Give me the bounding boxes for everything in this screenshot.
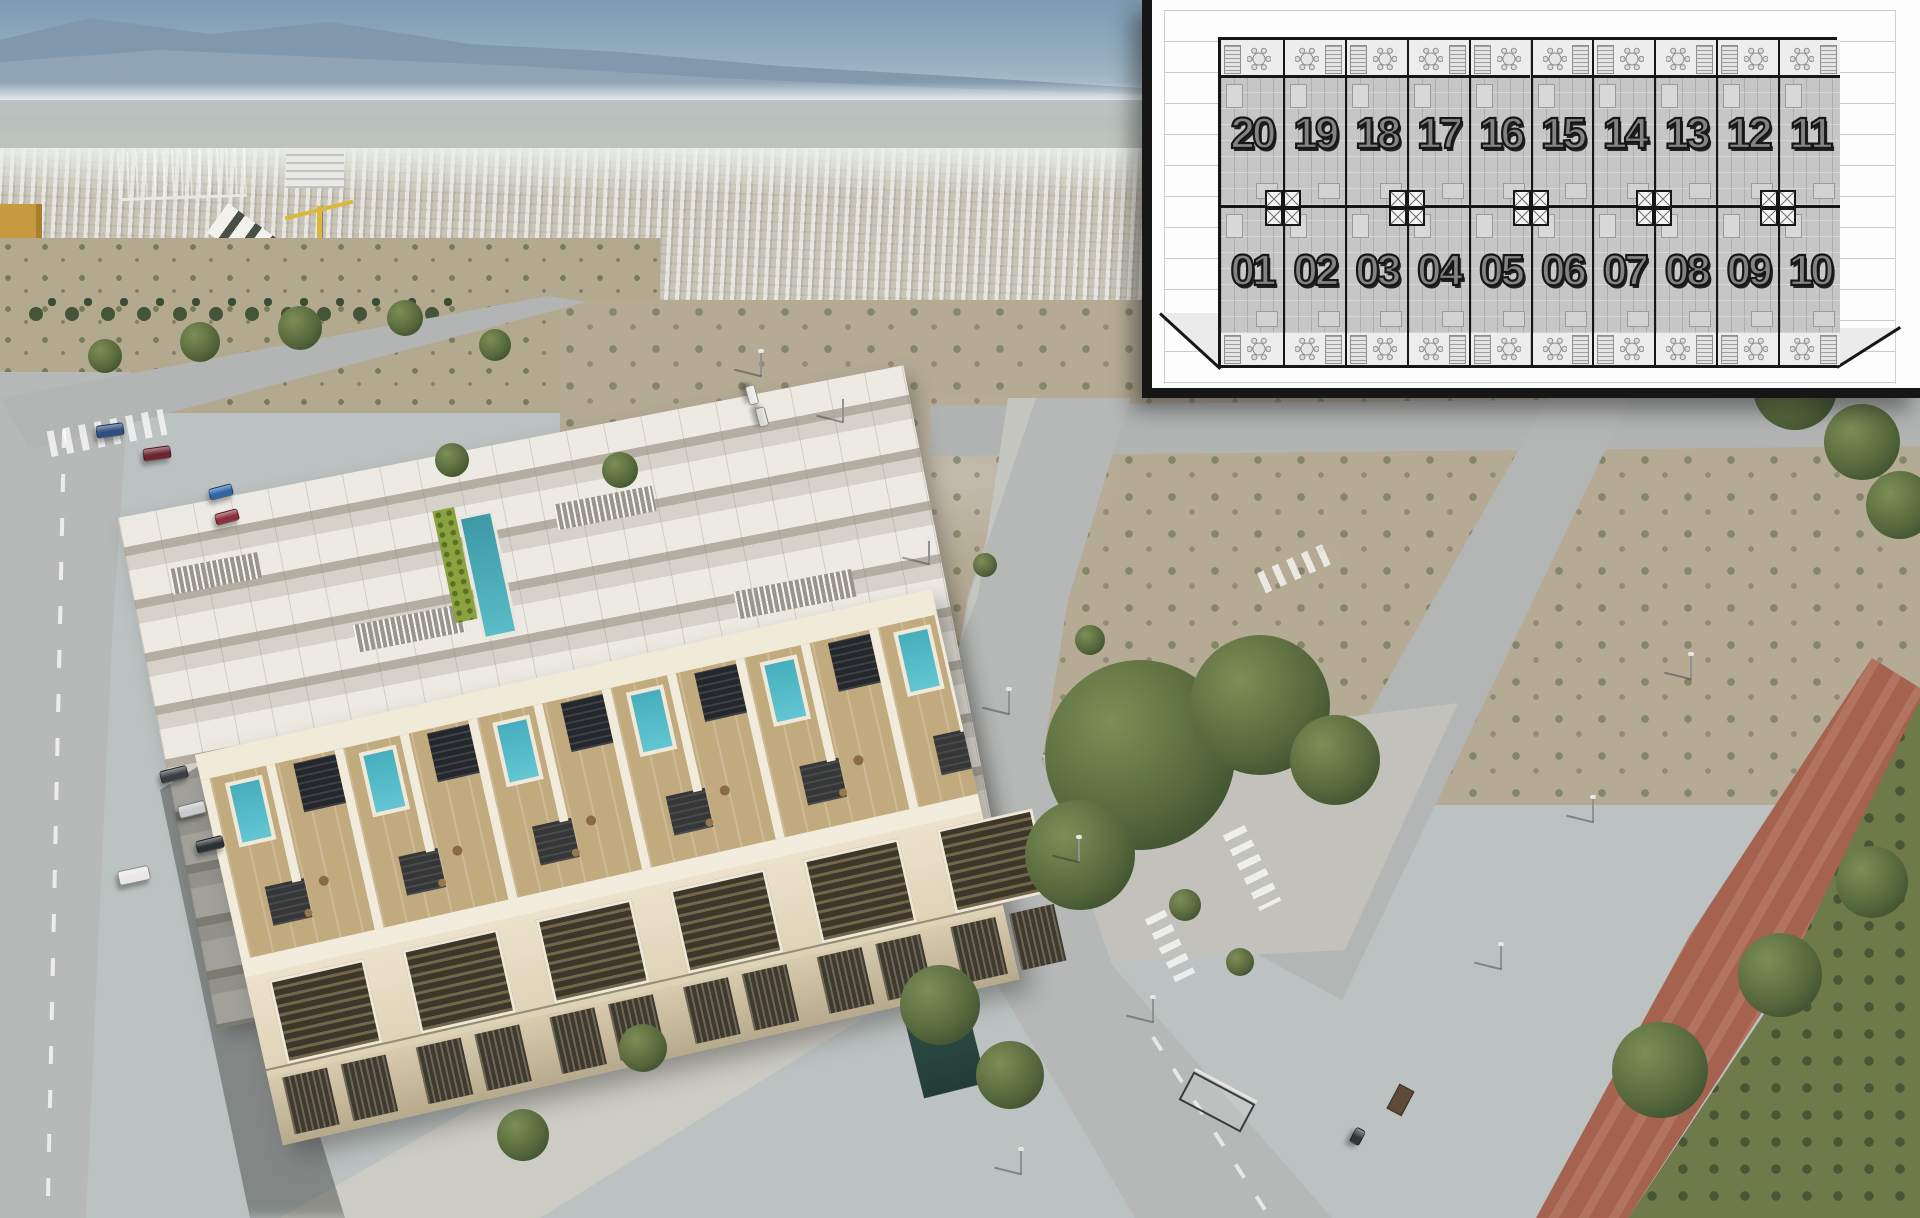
plunge-pool-icon [492, 715, 544, 788]
pergola-awning [353, 604, 466, 652]
unit-number: 07 [1603, 249, 1646, 293]
terrace-cell [1409, 40, 1469, 78]
tree-icon [973, 553, 997, 577]
tree-icon [1025, 800, 1135, 910]
terrace-furniture [585, 815, 597, 827]
core-shaft-x-icon [1760, 190, 1796, 226]
round-table-icon [1666, 337, 1690, 361]
terrace-cell [1533, 40, 1593, 78]
stairs-hatch-icon [1721, 45, 1738, 74]
street-light-icon [760, 352, 762, 376]
window-bay [536, 899, 651, 1004]
unit-number: 02 [1293, 249, 1336, 293]
round-table-icon [1373, 337, 1397, 361]
unit-upper-half: 18 [1347, 78, 1407, 208]
round-table-icon [1247, 337, 1271, 361]
street-light-icon [928, 540, 930, 564]
unit-number: 12 [1727, 112, 1770, 156]
tree-icon [976, 1041, 1044, 1109]
warehouse-green-roof [117, 148, 247, 201]
unit-upper-half: 19 [1285, 78, 1345, 208]
round-table-icon [1419, 47, 1443, 71]
round-table-icon [1744, 337, 1768, 361]
tree-icon [1836, 846, 1908, 918]
terrace-cell [1347, 40, 1407, 78]
terrace-cell [1780, 40, 1840, 78]
unit-number: 19 [1293, 112, 1336, 156]
street-light-icon [1078, 838, 1080, 862]
unit-number: 10 [1789, 249, 1832, 293]
tree-icon [88, 339, 122, 373]
street-light-icon [1008, 690, 1010, 714]
terrace-furniture [852, 754, 864, 766]
stairs-hatch-icon [1350, 335, 1367, 364]
plunge-pool-icon [760, 654, 812, 727]
plan-building: 2001190218031704160515061407130812091110 [1218, 37, 1837, 368]
tree-icon [278, 306, 322, 350]
street-light-icon [1152, 998, 1154, 1022]
site-plan-inset: 2001190218031704160515061407130812091110 [1142, 0, 1920, 398]
street-light-icon [842, 398, 844, 422]
stairs-hatch-icon [1572, 335, 1589, 364]
tree-icon [1612, 1022, 1708, 1118]
unit-number: 04 [1417, 249, 1460, 293]
unit-lower-half: 02 [1285, 208, 1345, 333]
slat-shutter [474, 1024, 532, 1091]
round-table-icon [1295, 47, 1319, 71]
stairs-hatch-icon [1224, 45, 1241, 74]
stairs-hatch-icon [1572, 45, 1589, 74]
window-bay [402, 929, 517, 1034]
round-table-icon [1295, 337, 1319, 361]
tree-icon [1824, 404, 1900, 480]
stairs-hatch-icon [1597, 335, 1614, 364]
street-light-icon [1690, 655, 1692, 679]
core-shaft-x-icon [1389, 190, 1425, 226]
round-table-icon [1620, 47, 1644, 71]
stairs-hatch-icon [1224, 335, 1241, 364]
unit-lower-half: 05 [1471, 208, 1531, 333]
stairs-hatch-icon [1449, 335, 1466, 364]
tree-icon [619, 1024, 667, 1072]
unit-lower-half: 06 [1533, 208, 1593, 333]
core-shaft-x-icon [1636, 190, 1672, 226]
round-table-icon [1497, 337, 1521, 361]
unit-upper-half: 12 [1718, 78, 1778, 208]
stairs-hatch-icon [1325, 335, 1342, 364]
tree-icon [180, 322, 220, 362]
unit-lower-half: 07 [1594, 208, 1654, 333]
street-light-icon [1592, 798, 1594, 822]
slat-shutter [683, 977, 741, 1044]
terrace-cell [1221, 40, 1283, 78]
round-table-icon [1744, 47, 1768, 71]
round-table-icon [1543, 47, 1567, 71]
window-bay [268, 959, 383, 1064]
unit-upper-half: 16 [1471, 78, 1531, 208]
core-shaft-x-icon [1513, 190, 1549, 226]
car-icon [117, 865, 151, 886]
tree-icon [602, 452, 638, 488]
unit-number: 13 [1665, 112, 1708, 156]
terrace-furniture [719, 784, 731, 796]
slat-shutter [742, 964, 800, 1031]
round-table-icon [1790, 47, 1814, 71]
plunge-pool-icon [359, 745, 411, 818]
slat-shutter [549, 1007, 607, 1074]
car-icon [142, 445, 172, 462]
stairs-hatch-icon [1696, 45, 1713, 74]
stairs-hatch-icon [1474, 45, 1491, 74]
pergola-dark [265, 878, 313, 926]
stairs-hatch-icon [1474, 335, 1491, 364]
stairs-hatch-icon [1820, 45, 1837, 74]
round-table-icon [1373, 47, 1397, 71]
car-icon [1349, 1126, 1367, 1146]
pergola-dark [666, 788, 714, 836]
unit-number: 20 [1230, 112, 1273, 156]
bench [1386, 1084, 1414, 1117]
pergola-dark [398, 848, 446, 896]
unit-number: 05 [1479, 249, 1522, 293]
unit-lower-half: 03 [1347, 208, 1407, 333]
unit-upper-half: 14 [1594, 78, 1654, 208]
unit-upper-half: 20 [1221, 78, 1283, 208]
tree-icon [1738, 933, 1822, 1017]
tree-icon [1169, 889, 1201, 921]
unit-number: 08 [1665, 249, 1708, 293]
round-table-icon [1666, 47, 1690, 71]
unit-lower-half: 09 [1718, 208, 1778, 333]
plunge-pool-icon [225, 775, 277, 848]
unit-number: 01 [1230, 249, 1273, 293]
stairs-hatch-icon [1721, 335, 1738, 364]
plunge-pool-icon [626, 684, 678, 757]
street-light-icon [1500, 945, 1502, 969]
unit-number: 03 [1355, 249, 1398, 293]
unit-number: 14 [1603, 112, 1646, 156]
pergola-awning [169, 552, 262, 595]
white-office-building [286, 146, 344, 188]
terrace-furniture [318, 875, 330, 887]
tree-icon [387, 300, 423, 336]
unit-number: 15 [1541, 112, 1584, 156]
round-table-icon [1497, 47, 1521, 71]
unit-upper-half: 13 [1656, 78, 1716, 208]
unit-number: 17 [1417, 112, 1460, 156]
unit-lower-half: 10 [1780, 208, 1840, 333]
stairs-hatch-icon [1350, 45, 1367, 74]
slat-shutter [282, 1068, 340, 1135]
tree-icon [435, 443, 469, 477]
tree-icon [1226, 948, 1254, 976]
terrace-cell [1718, 40, 1778, 78]
terrace-furniture [451, 845, 463, 857]
terrace-cell [1471, 40, 1531, 78]
pergola-dark [532, 818, 580, 866]
terrace-cell [1285, 40, 1345, 78]
tree-icon [497, 1109, 549, 1161]
unit-upper-half: 11 [1780, 78, 1840, 208]
window-bay [669, 868, 784, 973]
core-shaft-x-icon [1265, 190, 1301, 226]
slat-shutter [341, 1054, 399, 1121]
unit-lower-half: 01 [1221, 208, 1283, 333]
tree-icon [479, 329, 511, 361]
stairs-hatch-icon [1597, 45, 1614, 74]
unit-number: 18 [1355, 112, 1398, 156]
tree-icon [1075, 625, 1105, 655]
aerial-development-scene: 2001190218031704160515061407130812091110 [0, 0, 1920, 1218]
tree-icon [1290, 715, 1380, 805]
pergola-awning [553, 486, 656, 531]
unit-number: 09 [1727, 249, 1770, 293]
stairs-hatch-icon [1325, 45, 1342, 74]
street-light-icon [1020, 1150, 1022, 1174]
round-table-icon [1419, 337, 1443, 361]
plunge-pool-icon [893, 624, 945, 697]
round-table-icon [1790, 337, 1814, 361]
stairs-hatch-icon [1696, 335, 1713, 364]
tree-icon [900, 965, 980, 1045]
unit-lower-half: 04 [1409, 208, 1469, 333]
stairs-hatch-icon [1449, 45, 1466, 74]
slat-shutter [817, 947, 875, 1014]
stairs-hatch-icon [1820, 335, 1837, 364]
terrace-cell [1594, 40, 1654, 78]
round-table-icon [1247, 47, 1271, 71]
unit-number: 06 [1541, 249, 1584, 293]
unit-number: 11 [1790, 112, 1831, 156]
round-table-icon [1620, 337, 1644, 361]
unit-upper-half: 17 [1409, 78, 1469, 208]
round-table-icon [1543, 337, 1567, 361]
slat-shutter [416, 1038, 474, 1105]
unit-lower-half: 08 [1656, 208, 1716, 333]
unit-number: 16 [1479, 112, 1522, 156]
pergola-dark [799, 758, 847, 806]
unit-upper-half: 15 [1533, 78, 1593, 208]
window-bay [803, 838, 918, 943]
terrace-cell [1656, 40, 1716, 78]
